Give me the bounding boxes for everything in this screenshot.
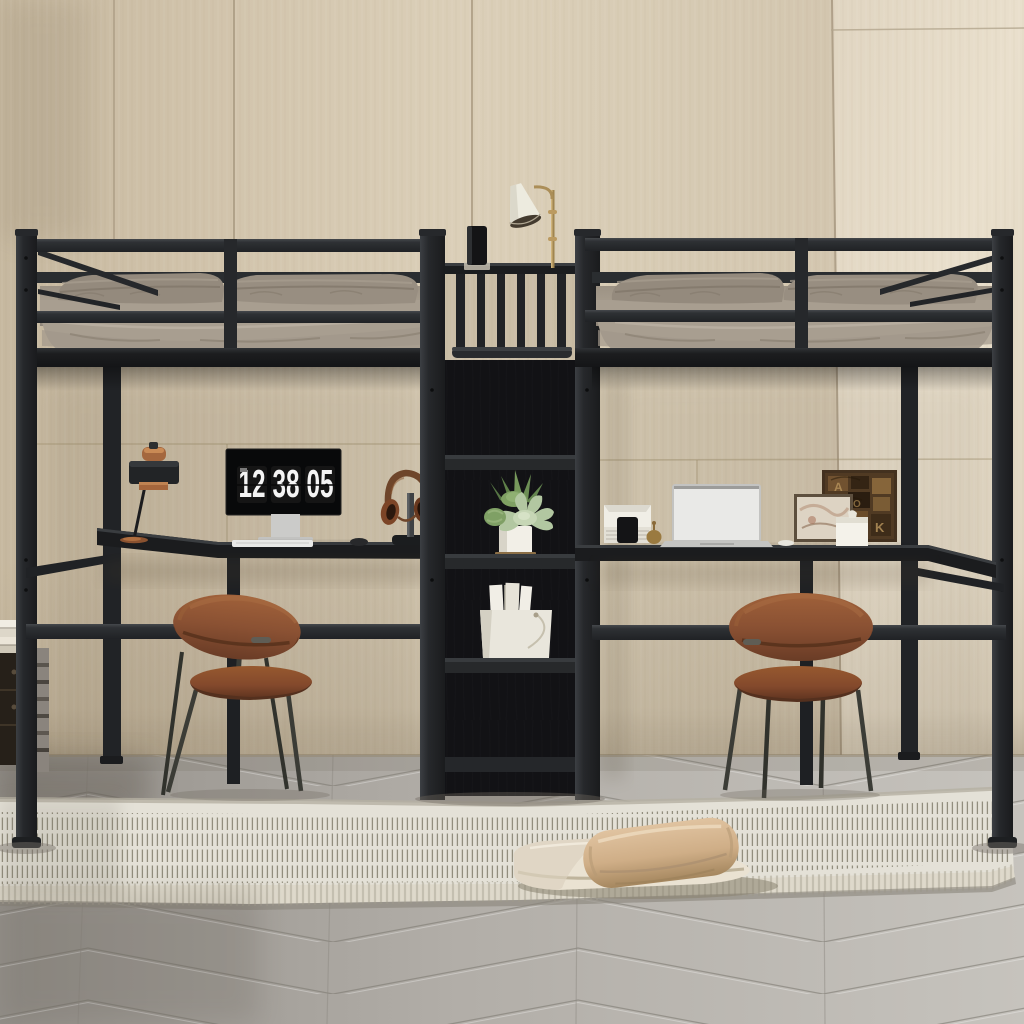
svg-text:K: K xyxy=(875,520,885,535)
svg-text:O: O xyxy=(853,499,861,510)
svg-text:A: A xyxy=(834,480,843,494)
